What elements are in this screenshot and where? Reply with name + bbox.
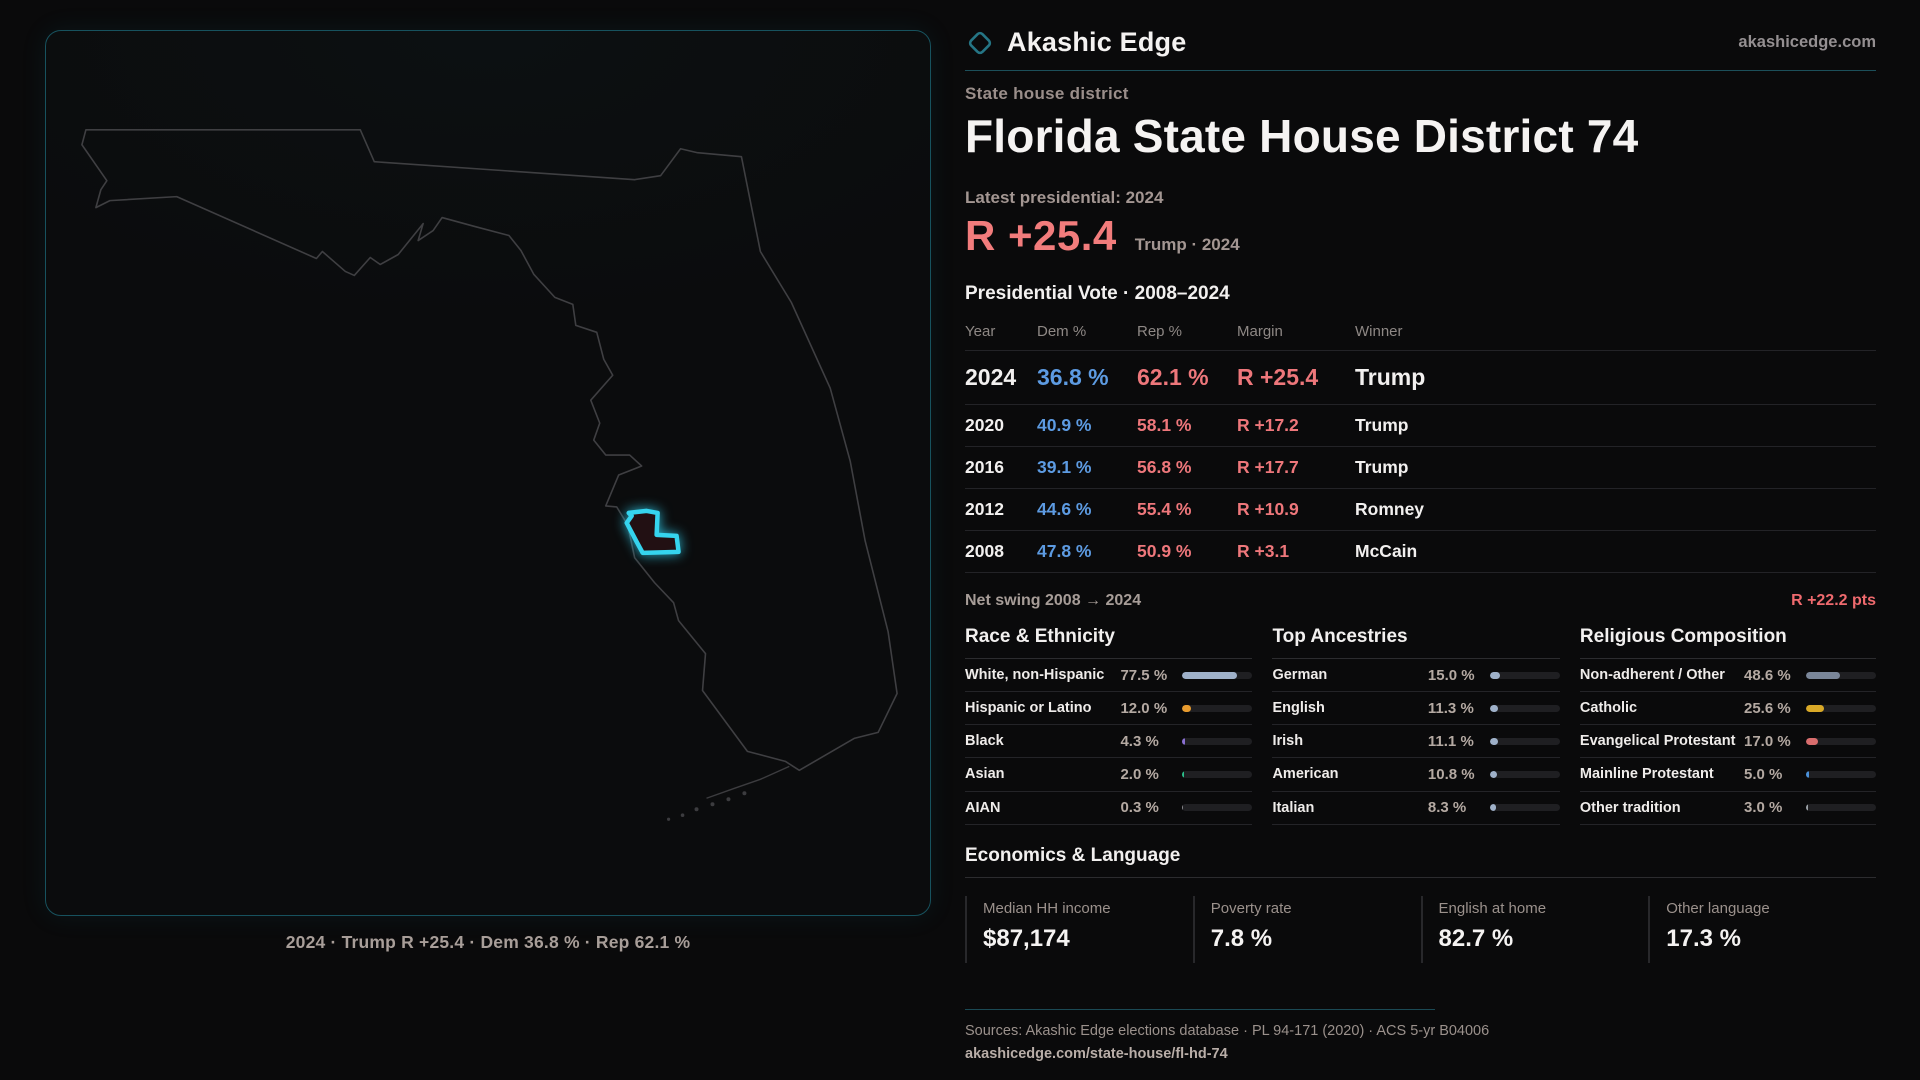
headline-margin: R +25.4 Trump · 2024	[965, 212, 1876, 260]
cell-margin: R +3.1	[1237, 541, 1355, 562]
mini-bar	[1182, 738, 1252, 745]
footer: Sources: Akashic Edge elections database…	[965, 1009, 1876, 1062]
net-swing-label: Net swing 2008 → 2024	[965, 592, 1141, 610]
section-title: Religious Composition	[1580, 626, 1876, 659]
mini-bar-fill	[1182, 771, 1183, 778]
col-rep: Rep %	[1137, 323, 1237, 340]
mini-bar	[1490, 804, 1560, 811]
cell-rep: 58.1 %	[1137, 415, 1237, 436]
col-year: Year	[965, 323, 1037, 340]
demo-value: 25.6 %	[1744, 700, 1806, 717]
demo-value: 11.1 %	[1428, 733, 1490, 750]
cell-dem: 47.8 %	[1037, 541, 1137, 562]
vote-table-title: Presidential Vote · 2008–2024	[965, 283, 1876, 305]
demo-label: Italian	[1272, 799, 1427, 817]
stat-value: $87,174	[983, 925, 1183, 953]
mini-bar	[1182, 705, 1252, 712]
cell-year: 2024	[965, 364, 1037, 391]
demo-row: German 15.0 %	[1272, 659, 1559, 692]
demo-label: Hispanic or Latino	[965, 699, 1120, 717]
florida-keys-outline	[707, 766, 790, 798]
keys-island-dot	[667, 818, 670, 821]
demo-label: English	[1272, 699, 1427, 717]
cell-winner: Trump	[1355, 364, 1876, 391]
stat-label: English at home	[1439, 900, 1639, 917]
demo-label: German	[1272, 666, 1427, 684]
table-row: 2012 44.6 % 55.4 % R +10.9 Romney	[965, 489, 1876, 531]
content-panel: Akashic Edge akashicedge.com State house…	[965, 27, 1876, 1080]
section-title: Race & Ethnicity	[965, 626, 1252, 659]
mini-bar	[1182, 804, 1252, 811]
cell-year: 2008	[965, 541, 1037, 562]
latest-presidential-label: Latest presidential: 2024	[965, 188, 1876, 208]
cell-dem: 40.9 %	[1037, 415, 1137, 436]
margin-value: R +25.4	[965, 212, 1117, 260]
demo-row: Hispanic or Latino 12.0 %	[965, 692, 1252, 725]
mini-bar	[1182, 771, 1252, 778]
keys-island-dot	[742, 791, 746, 795]
mini-bar	[1490, 672, 1560, 679]
mini-bar-fill	[1806, 738, 1818, 745]
cell-winner: Trump	[1355, 415, 1876, 436]
demo-label: Catholic	[1580, 699, 1744, 717]
mini-bar-fill	[1806, 705, 1824, 712]
mini-bar-fill	[1806, 771, 1810, 778]
demo-value: 77.5 %	[1120, 667, 1182, 684]
demo-label: White, non-Hispanic	[965, 666, 1120, 684]
cell-margin: R +10.9	[1237, 499, 1355, 520]
demo-label: Mainline Protestant	[1580, 765, 1744, 783]
table-row: 2016 39.1 % 56.8 % R +17.7 Trump	[965, 447, 1876, 489]
demo-value: 12.0 %	[1120, 700, 1182, 717]
mini-bar	[1806, 738, 1876, 745]
mini-bar-fill	[1490, 705, 1498, 712]
stat-value: 82.7 %	[1439, 925, 1639, 953]
cell-margin: R +17.7	[1237, 457, 1355, 478]
mini-bar-fill	[1490, 804, 1496, 811]
demo-row: English 11.3 %	[1272, 692, 1559, 725]
section-title: Top Ancestries	[1272, 626, 1559, 659]
cell-dem: 39.1 %	[1037, 457, 1137, 478]
demo-label: AIAN	[965, 799, 1120, 817]
mini-bar-fill	[1490, 738, 1498, 745]
demo-row: Non-adherent / Other 48.6 %	[1580, 659, 1876, 692]
table-row: 2008 47.8 % 50.9 % R +3.1 McCain	[965, 531, 1876, 573]
top-ancestries-section: Top Ancestries German 15.0 % English 11.…	[1272, 626, 1559, 825]
demo-value: 15.0 %	[1428, 667, 1490, 684]
demo-value: 10.8 %	[1428, 766, 1490, 783]
florida-map	[46, 31, 930, 915]
stat-label: Poverty rate	[1211, 900, 1411, 917]
site-link[interactable]: akashicedge.com	[1738, 33, 1876, 52]
permalink[interactable]: akashicedge.com/state-house/fl-hd-74	[965, 1046, 1876, 1062]
stat-poverty-rate: Poverty rate 7.8 %	[1193, 896, 1421, 963]
demo-value: 5.0 %	[1744, 766, 1806, 783]
map-card	[45, 30, 931, 916]
keys-island-dot	[695, 807, 699, 811]
demo-label: Non-adherent / Other	[1580, 666, 1744, 684]
stat-label: Median HH income	[983, 900, 1183, 917]
demo-label: Irish	[1272, 732, 1427, 750]
margin-context: Trump · 2024	[1135, 235, 1240, 255]
demo-value: 11.3 %	[1428, 700, 1490, 717]
demo-row: American 10.8 %	[1272, 758, 1559, 791]
table-header-row: Year Dem % Rep % Margin Winner	[965, 315, 1876, 351]
net-swing-value: R +22.2 pts	[1791, 592, 1876, 610]
demo-value: 2.0 %	[1120, 766, 1182, 783]
brand-name: Akashic Edge	[1007, 27, 1186, 58]
mini-bar	[1490, 771, 1560, 778]
col-winner: Winner	[1355, 323, 1876, 340]
net-swing-row: Net swing 2008 → 2024 R +22.2 pts	[965, 580, 1876, 610]
demo-value: 17.0 %	[1744, 733, 1806, 750]
demo-row: Italian 8.3 %	[1272, 792, 1559, 825]
cell-winner: Romney	[1355, 499, 1876, 520]
cell-year: 2012	[965, 499, 1037, 520]
demographics-grid: Race & Ethnicity White, non-Hispanic 77.…	[965, 626, 1876, 825]
economics-language-section: Economics & Language Median HH income $8…	[965, 845, 1876, 963]
mini-bar	[1490, 738, 1560, 745]
demo-label: Other tradition	[1580, 799, 1744, 817]
mini-bar	[1806, 804, 1876, 811]
section-title: Economics & Language	[965, 845, 1876, 878]
race-ethnicity-section: Race & Ethnicity White, non-Hispanic 77.…	[965, 626, 1252, 825]
stat-label: Other language	[1666, 900, 1866, 917]
demo-value: 48.6 %	[1744, 667, 1806, 684]
page-title: Florida State House District 74	[965, 109, 1876, 163]
cell-rep: 50.9 %	[1137, 541, 1237, 562]
demo-row: Asian 2.0 %	[965, 758, 1252, 791]
district-kicker: State house district	[965, 84, 1876, 104]
demo-row: Catholic 25.6 %	[1580, 692, 1876, 725]
demo-row: Other tradition 3.0 %	[1580, 792, 1876, 825]
stat-median-hh-income: Median HH income $87,174	[965, 896, 1193, 963]
mini-bar-fill	[1490, 771, 1498, 778]
presidential-vote-table: Year Dem % Rep % Margin Winner 2024 36.8…	[965, 315, 1876, 573]
table-row: 2024 36.8 % 62.1 % R +25.4 Trump	[965, 351, 1876, 405]
demo-label: Asian	[965, 765, 1120, 783]
mini-bar-fill	[1806, 672, 1840, 679]
demo-label: Black	[965, 732, 1120, 750]
table-row: 2020 40.9 % 58.1 % R +17.2 Trump	[965, 405, 1876, 447]
header-bar: Akashic Edge akashicedge.com	[965, 27, 1876, 71]
keys-island-dot	[681, 813, 685, 817]
mini-bar-fill	[1182, 672, 1236, 679]
religious-composition-section: Religious Composition Non-adherent / Oth…	[1580, 626, 1876, 825]
economics-stats-row: Median HH income $87,174 Poverty rate 7.…	[965, 896, 1876, 963]
florida-outline	[82, 130, 897, 771]
demo-value: 8.3 %	[1428, 799, 1490, 816]
mini-bar	[1182, 672, 1252, 679]
cell-margin: R +17.2	[1237, 415, 1355, 436]
diamond-logo-icon	[965, 28, 995, 58]
sources-text: Sources: Akashic Edge elections database…	[965, 1023, 1876, 1039]
stat-english-at-home: English at home 82.7 %	[1421, 896, 1649, 963]
mini-bar	[1806, 771, 1876, 778]
demo-row: AIAN 0.3 %	[965, 792, 1252, 825]
stat-value: 17.3 %	[1666, 925, 1866, 953]
demo-value: 3.0 %	[1744, 799, 1806, 816]
keys-island-dot	[726, 797, 730, 801]
cell-year: 2020	[965, 415, 1037, 436]
map-caption: 2024 · Trump R +25.4 · Dem 36.8 % · Rep …	[45, 932, 931, 953]
mini-bar-fill	[1182, 705, 1190, 712]
cell-rep: 55.4 %	[1137, 499, 1237, 520]
cell-dem: 36.8 %	[1037, 364, 1137, 391]
keys-island-dot	[710, 802, 714, 806]
col-dem: Dem %	[1037, 323, 1137, 340]
demo-label: Evangelical Protestant	[1580, 732, 1744, 750]
map-section: 2024 · Trump R +25.4 · Dem 36.8 % · Rep …	[45, 30, 931, 1080]
demo-value: 0.3 %	[1120, 799, 1182, 816]
cell-dem: 44.6 %	[1037, 499, 1137, 520]
mini-bar-fill	[1490, 672, 1501, 679]
cell-year: 2016	[965, 457, 1037, 478]
demo-value: 4.3 %	[1120, 733, 1182, 750]
stat-other-language: Other language 17.3 %	[1648, 896, 1876, 963]
mini-bar-fill	[1806, 804, 1808, 811]
cell-rep: 62.1 %	[1137, 364, 1237, 391]
cell-margin: R +25.4	[1237, 364, 1355, 391]
page: 2024 · Trump R +25.4 · Dem 36.8 % · Rep …	[0, 0, 1920, 1080]
demo-row: Mainline Protestant 5.0 %	[1580, 758, 1876, 791]
mini-bar-fill	[1182, 738, 1185, 745]
mini-bar	[1490, 705, 1560, 712]
cell-rep: 56.8 %	[1137, 457, 1237, 478]
cell-winner: Trump	[1355, 457, 1876, 478]
col-margin: Margin	[1237, 323, 1355, 340]
demo-row: White, non-Hispanic 77.5 %	[965, 659, 1252, 692]
footer-divider	[965, 1009, 1435, 1010]
district-shape[interactable]	[627, 511, 679, 553]
demo-row: Evangelical Protestant 17.0 %	[1580, 725, 1876, 758]
mini-bar	[1806, 672, 1876, 679]
demo-row: Irish 11.1 %	[1272, 725, 1559, 758]
demo-row: Black 4.3 %	[965, 725, 1252, 758]
demo-label: American	[1272, 765, 1427, 783]
cell-winner: McCain	[1355, 541, 1876, 562]
mini-bar	[1806, 705, 1876, 712]
stat-value: 7.8 %	[1211, 925, 1411, 953]
